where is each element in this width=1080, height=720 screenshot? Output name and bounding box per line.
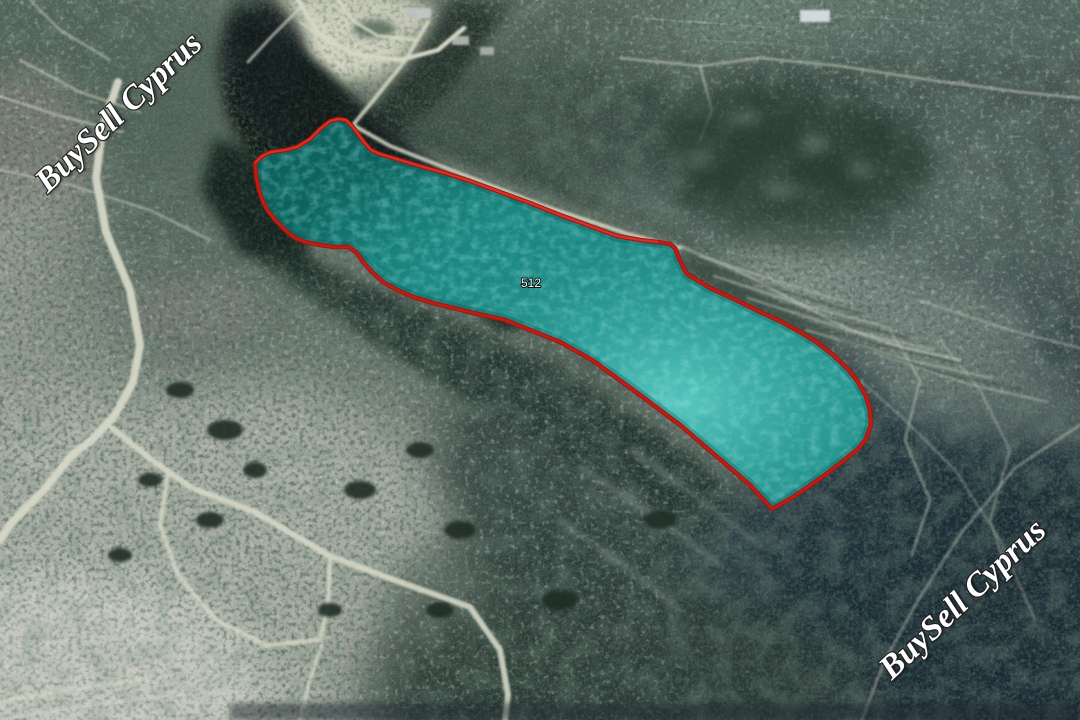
svg-text:512: 512 (521, 276, 541, 290)
